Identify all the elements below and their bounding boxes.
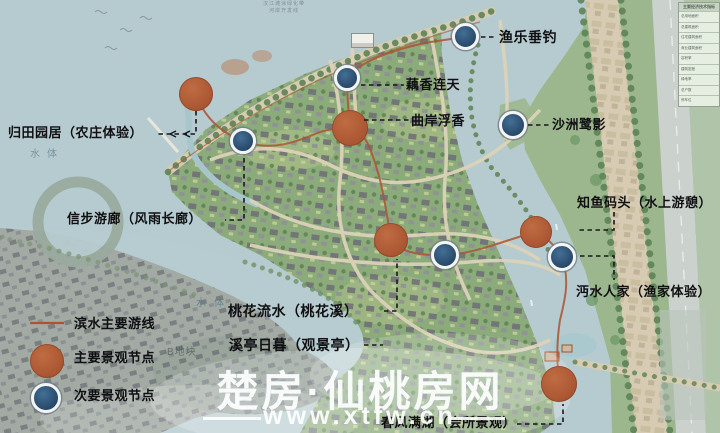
major-node-guitian xyxy=(179,77,213,111)
minor-node-shazhou xyxy=(499,111,527,139)
birds xyxy=(95,11,152,50)
tour-route xyxy=(170,22,566,382)
indicator-table-title: 主要经济技术指标 xyxy=(679,3,719,11)
major-node-zhiyu xyxy=(520,216,552,248)
label-guitianyuanju: 归田园居（农庄体验） xyxy=(8,126,143,139)
watermark-line-left xyxy=(203,417,261,420)
watermark-line-right xyxy=(450,417,505,420)
label-mianshuirenjia: 沔水人家（渔家体验） xyxy=(576,285,711,298)
label-ouxianglantian: 藕香连天 xyxy=(406,78,460,91)
master-plan-map: 归田园居（农庄体验） 信步游廊（风雨长廊） 渔乐垂钓 藕香连天 曲岸浮香 沙洲鹭… xyxy=(0,0,720,433)
label-xinbuyoulang: 信步游廊（风雨长廊） xyxy=(67,212,202,225)
minor-node-5 xyxy=(431,241,459,269)
minor-node-ouxiang xyxy=(334,65,360,91)
label-xitingrimu: 溪亭日暮（观景亭） xyxy=(229,338,360,352)
plot-b-label: B地块 xyxy=(167,343,197,358)
legend-route-label: 滨水主要游线 xyxy=(74,317,155,330)
label-quanfuxiang: 曲岸浮香 xyxy=(411,114,465,127)
label-zhiyumatou: 知鱼码头（水上游憩） xyxy=(577,196,712,209)
river-note: 汉江滩涂绿化带 河岸开发线 xyxy=(224,1,344,14)
label-shazhouluying: 沙洲鹭影 xyxy=(552,118,606,131)
major-node-quan xyxy=(332,110,368,146)
indicator-table: 主要经济技术指标 总用地面积 总建筑面积 住宅建筑面积 商业建筑面积 容积率 建… xyxy=(678,2,720,107)
label-yulechuidiao: 渔乐垂钓 xyxy=(499,30,557,44)
watermark-url: www.xtfw.cn xyxy=(0,402,720,431)
minor-node-xinbu xyxy=(230,128,256,154)
minor-node-mianshui xyxy=(548,243,576,271)
entry-gate xyxy=(351,33,374,48)
label-taohualiushui: 桃花流水（桃花溪） xyxy=(228,304,359,318)
major-node-taohua xyxy=(374,223,408,257)
water-label-left: 水体 xyxy=(30,145,64,160)
minor-node-yule xyxy=(452,23,479,50)
water-label-center: 水体 xyxy=(196,294,232,309)
